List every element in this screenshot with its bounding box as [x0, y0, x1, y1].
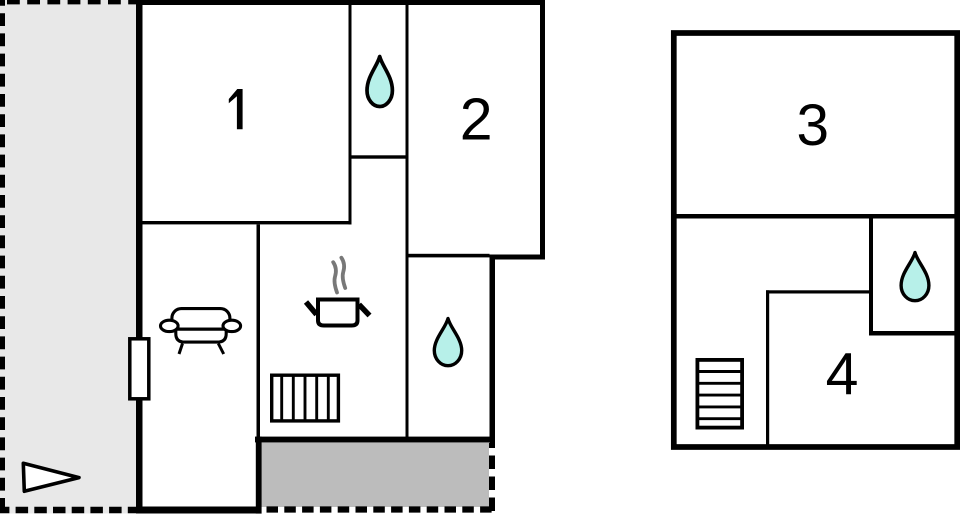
- svg-text:3: 3: [797, 93, 830, 158]
- svg-text:2: 2: [460, 87, 493, 153]
- svg-text:4: 4: [826, 342, 859, 408]
